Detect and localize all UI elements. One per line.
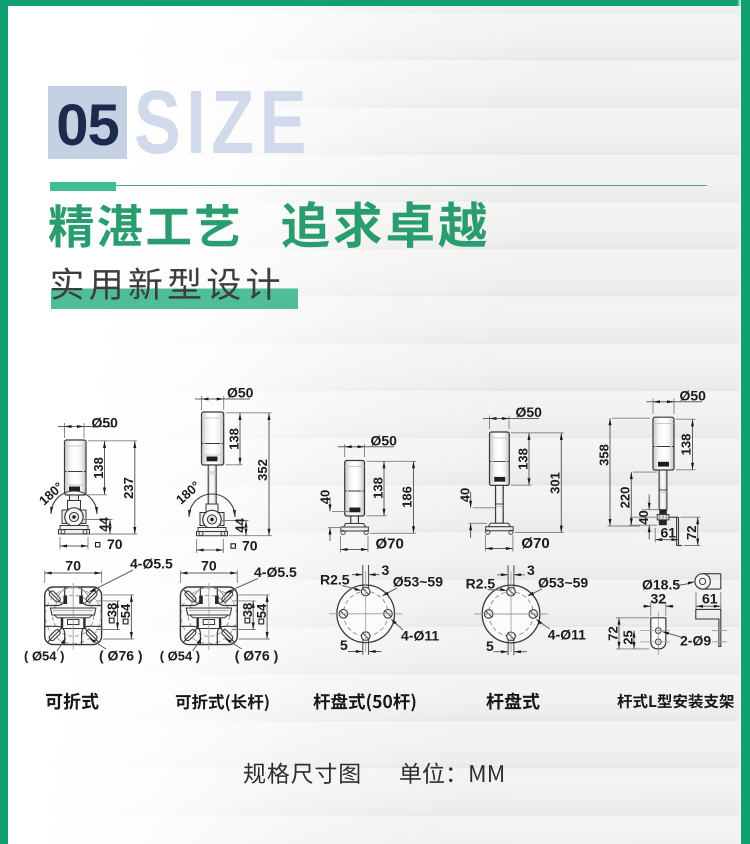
- svg-text:40: 40: [317, 490, 332, 504]
- svg-text:72: 72: [606, 626, 621, 640]
- svg-text:138: 138: [679, 434, 694, 456]
- svg-text:72: 72: [684, 525, 699, 539]
- svg-text:358: 358: [597, 444, 612, 466]
- svg-text:138: 138: [370, 477, 385, 499]
- svg-text:61: 61: [661, 525, 677, 541]
- svg-text:4-Ø11: 4-Ø11: [548, 627, 586, 643]
- svg-text:3: 3: [382, 562, 390, 578]
- svg-text:4-Ø5.5: 4-Ø5.5: [130, 556, 173, 572]
- svg-text:25: 25: [621, 630, 636, 644]
- svg-text:Ø53~59: Ø53~59: [538, 574, 588, 590]
- svg-text:4-Ø5.5: 4-Ø5.5: [254, 564, 297, 580]
- svg-text:138: 138: [91, 457, 106, 479]
- svg-text:5: 5: [486, 638, 494, 654]
- svg-text:54: 54: [254, 603, 269, 618]
- svg-text:( Ø54 ): ( Ø54 ): [160, 649, 200, 664]
- svg-text:Ø50: Ø50: [371, 433, 398, 449]
- svg-text:44: 44: [97, 517, 112, 532]
- svg-text:R2.5: R2.5: [466, 575, 496, 591]
- svg-text:4-Ø11: 4-Ø11: [401, 628, 439, 644]
- svg-text:237: 237: [121, 477, 136, 499]
- svg-text:44: 44: [233, 518, 248, 533]
- svg-text:Ø50: Ø50: [227, 385, 254, 401]
- svg-text:301: 301: [548, 472, 563, 494]
- svg-text:R2.5: R2.5: [320, 572, 350, 588]
- svg-text:38: 38: [104, 603, 119, 617]
- svg-text:Ø53~59: Ø53~59: [393, 574, 443, 590]
- svg-text:186: 186: [400, 486, 415, 508]
- svg-text:Ø70: Ø70: [376, 536, 404, 553]
- svg-text:220: 220: [618, 487, 633, 509]
- svg-text:5: 5: [340, 637, 348, 653]
- svg-text:Ø50: Ø50: [516, 404, 543, 420]
- svg-text:138: 138: [226, 428, 241, 450]
- svg-text:Ø50: Ø50: [92, 415, 119, 431]
- svg-text:180°: 180°: [173, 478, 203, 507]
- svg-text:3: 3: [527, 562, 535, 578]
- svg-text:70: 70: [65, 558, 81, 574]
- svg-text:70: 70: [107, 536, 123, 552]
- svg-text:( Ø54 ): ( Ø54 ): [24, 649, 64, 664]
- svg-text:70: 70: [242, 538, 258, 554]
- svg-text:352: 352: [255, 459, 270, 481]
- svg-text:54: 54: [118, 603, 133, 618]
- svg-text:( Ø76 ): ( Ø76 ): [235, 648, 279, 664]
- svg-text:40: 40: [636, 510, 651, 524]
- svg-text:Ø70: Ø70: [521, 535, 549, 552]
- svg-text:61: 61: [702, 591, 718, 607]
- svg-text:38: 38: [240, 603, 255, 617]
- svg-text:2-Ø9: 2-Ø9: [680, 633, 711, 649]
- svg-text:40: 40: [458, 488, 473, 502]
- svg-text:70: 70: [201, 558, 217, 574]
- svg-text:32: 32: [651, 591, 667, 607]
- svg-text:( Ø76 ): ( Ø76 ): [99, 648, 143, 664]
- svg-text:138: 138: [515, 448, 530, 470]
- svg-text:Ø50: Ø50: [680, 388, 707, 404]
- svg-text:180°: 180°: [36, 479, 66, 508]
